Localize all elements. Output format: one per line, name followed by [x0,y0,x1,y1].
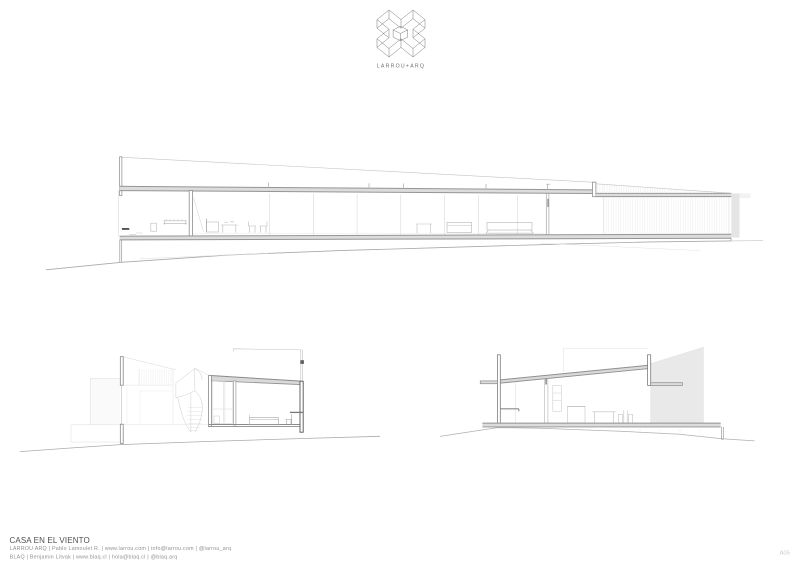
svg-text:BLAQ | Benjamin Litvak | www.b: BLAQ | Benjamin Litvak | www.blaq.cl | h… [10,554,178,560]
svg-text:CASA EN EL VIENTO: CASA EN EL VIENTO [10,536,90,545]
svg-text:LARROU ARQ | Pablo Lamoulet R.: LARROU ARQ | Pablo Lamoulet R. | www.lar… [10,546,231,552]
svg-text:LARROU+ARQ: LARROU+ARQ [377,64,425,70]
svg-text:A05: A05 [780,551,790,557]
